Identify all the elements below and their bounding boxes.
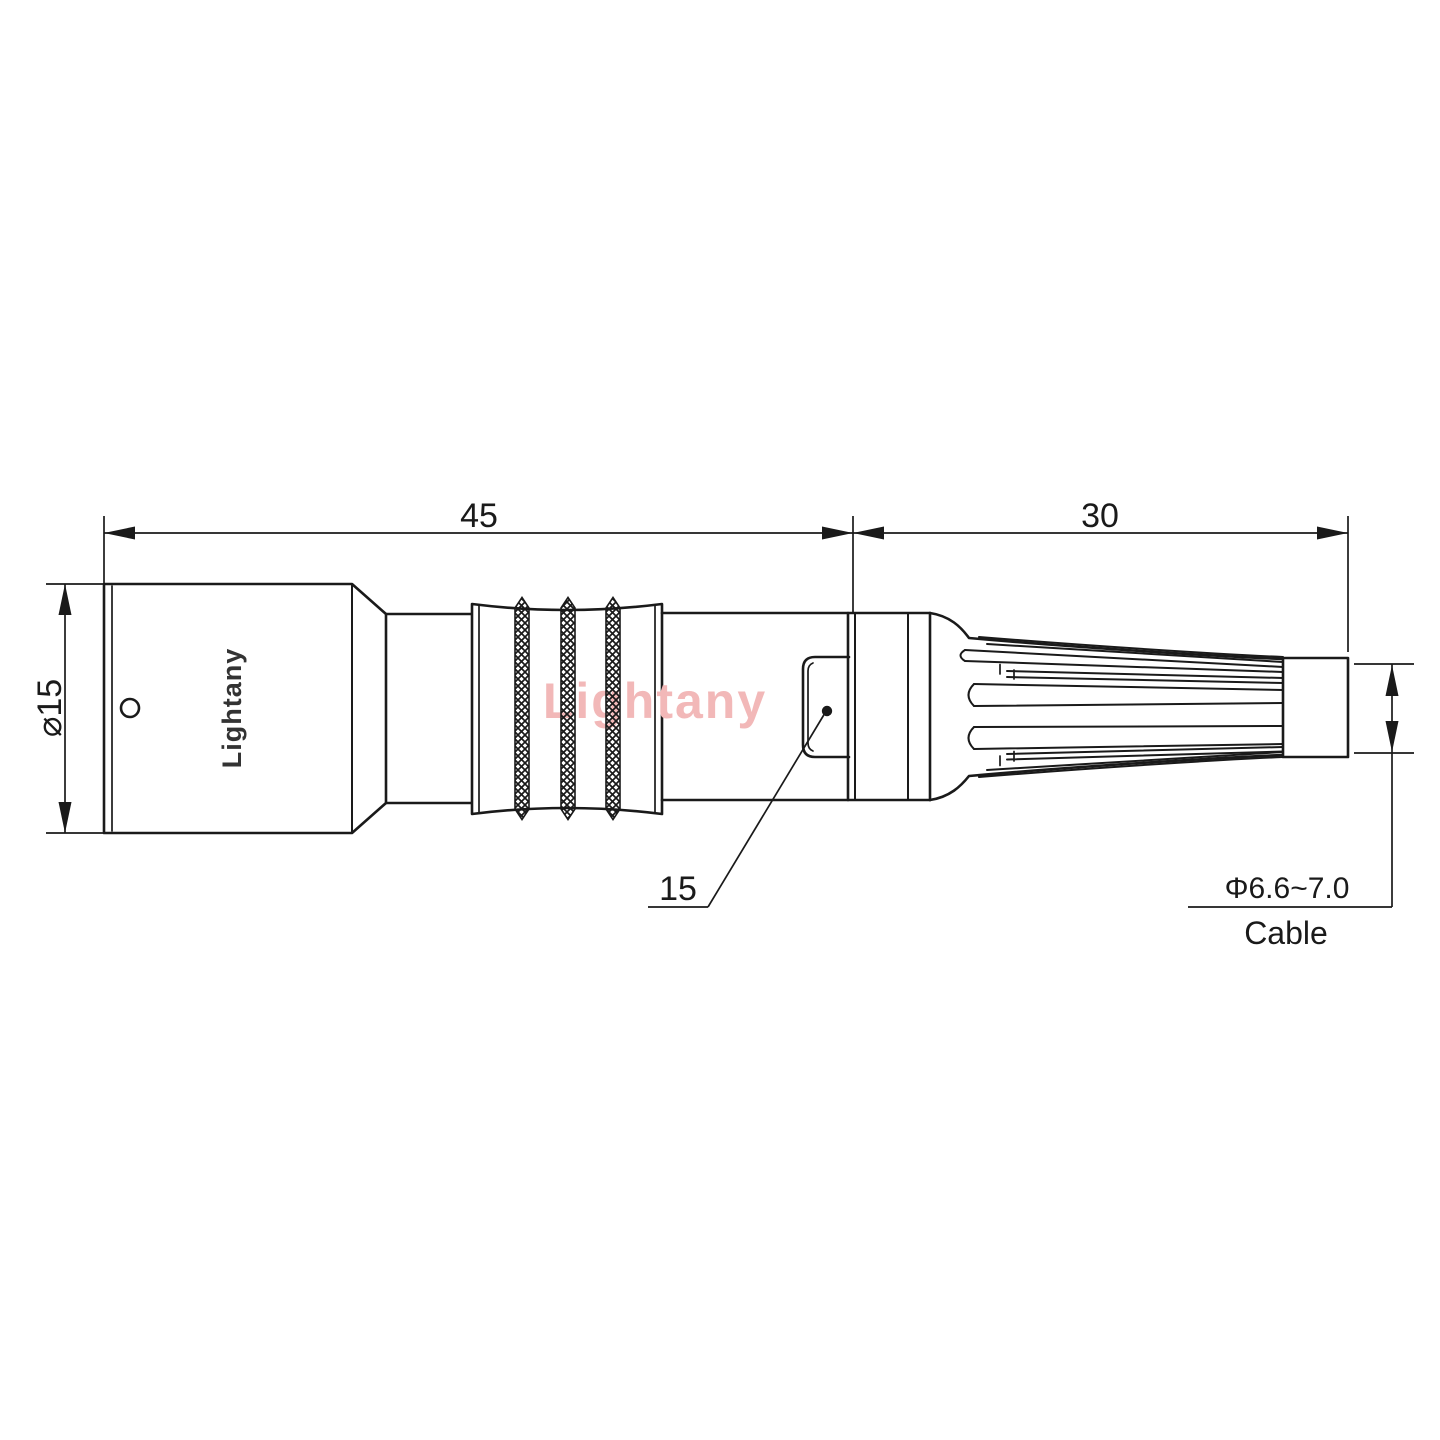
diameter-arrow-top: [59, 584, 72, 615]
cable-arrow-up: [1386, 665, 1399, 696]
boot-rib-line: [974, 684, 1283, 690]
dim-45-arrow-right: [822, 527, 853, 540]
cable-arrow-down: [1386, 721, 1399, 752]
boot-rib-line: [974, 703, 1283, 706]
leader-diagonal-line: [708, 713, 825, 907]
boot-ring: [848, 613, 930, 800]
drawing-canvas: Lightany: [0, 0, 1440, 1440]
connector-technical-drawing: Lightany: [0, 0, 1440, 1440]
knurl-band-3: [606, 598, 620, 820]
boot-flute-line: [987, 752, 1283, 770]
latch-leader-label: 15: [659, 870, 697, 908]
dim-30-arrow-left: [853, 527, 884, 540]
watermark-text: Lightany: [543, 673, 767, 729]
boot-rib-line: [974, 726, 1283, 727]
latch-leader: 15: [648, 713, 825, 908]
cable-word-label: Cable: [1244, 915, 1328, 951]
latch-detail: [803, 657, 849, 757]
dim-30-label: 30: [1081, 497, 1119, 535]
cable-diameter-label: Φ6.6~7.0: [1225, 872, 1350, 905]
strain-relief-boot: [930, 613, 1348, 800]
diameter-dim-label: ⌀15: [31, 679, 69, 737]
boot-rib-cap: [969, 684, 975, 706]
knurl-band-2: [561, 598, 575, 820]
knurl-band-1: [515, 598, 529, 820]
connector-brand-text: Lightany: [217, 648, 247, 769]
dim-30-arrow-right: [1317, 527, 1348, 540]
dimension-diameter-15: ⌀15: [31, 584, 104, 833]
connector-neck: [386, 614, 472, 803]
cable-ferrule: [1283, 658, 1348, 757]
diameter-arrow-bottom: [59, 802, 72, 833]
boot-rib-cap: [969, 727, 975, 749]
dimension-30: 30: [853, 497, 1348, 652]
drawing-root: Lightany: [31, 497, 1414, 951]
dim-45-arrow-left: [104, 527, 135, 540]
boot-flute-cap: [961, 650, 966, 661]
dim-45-label: 45: [460, 497, 498, 535]
